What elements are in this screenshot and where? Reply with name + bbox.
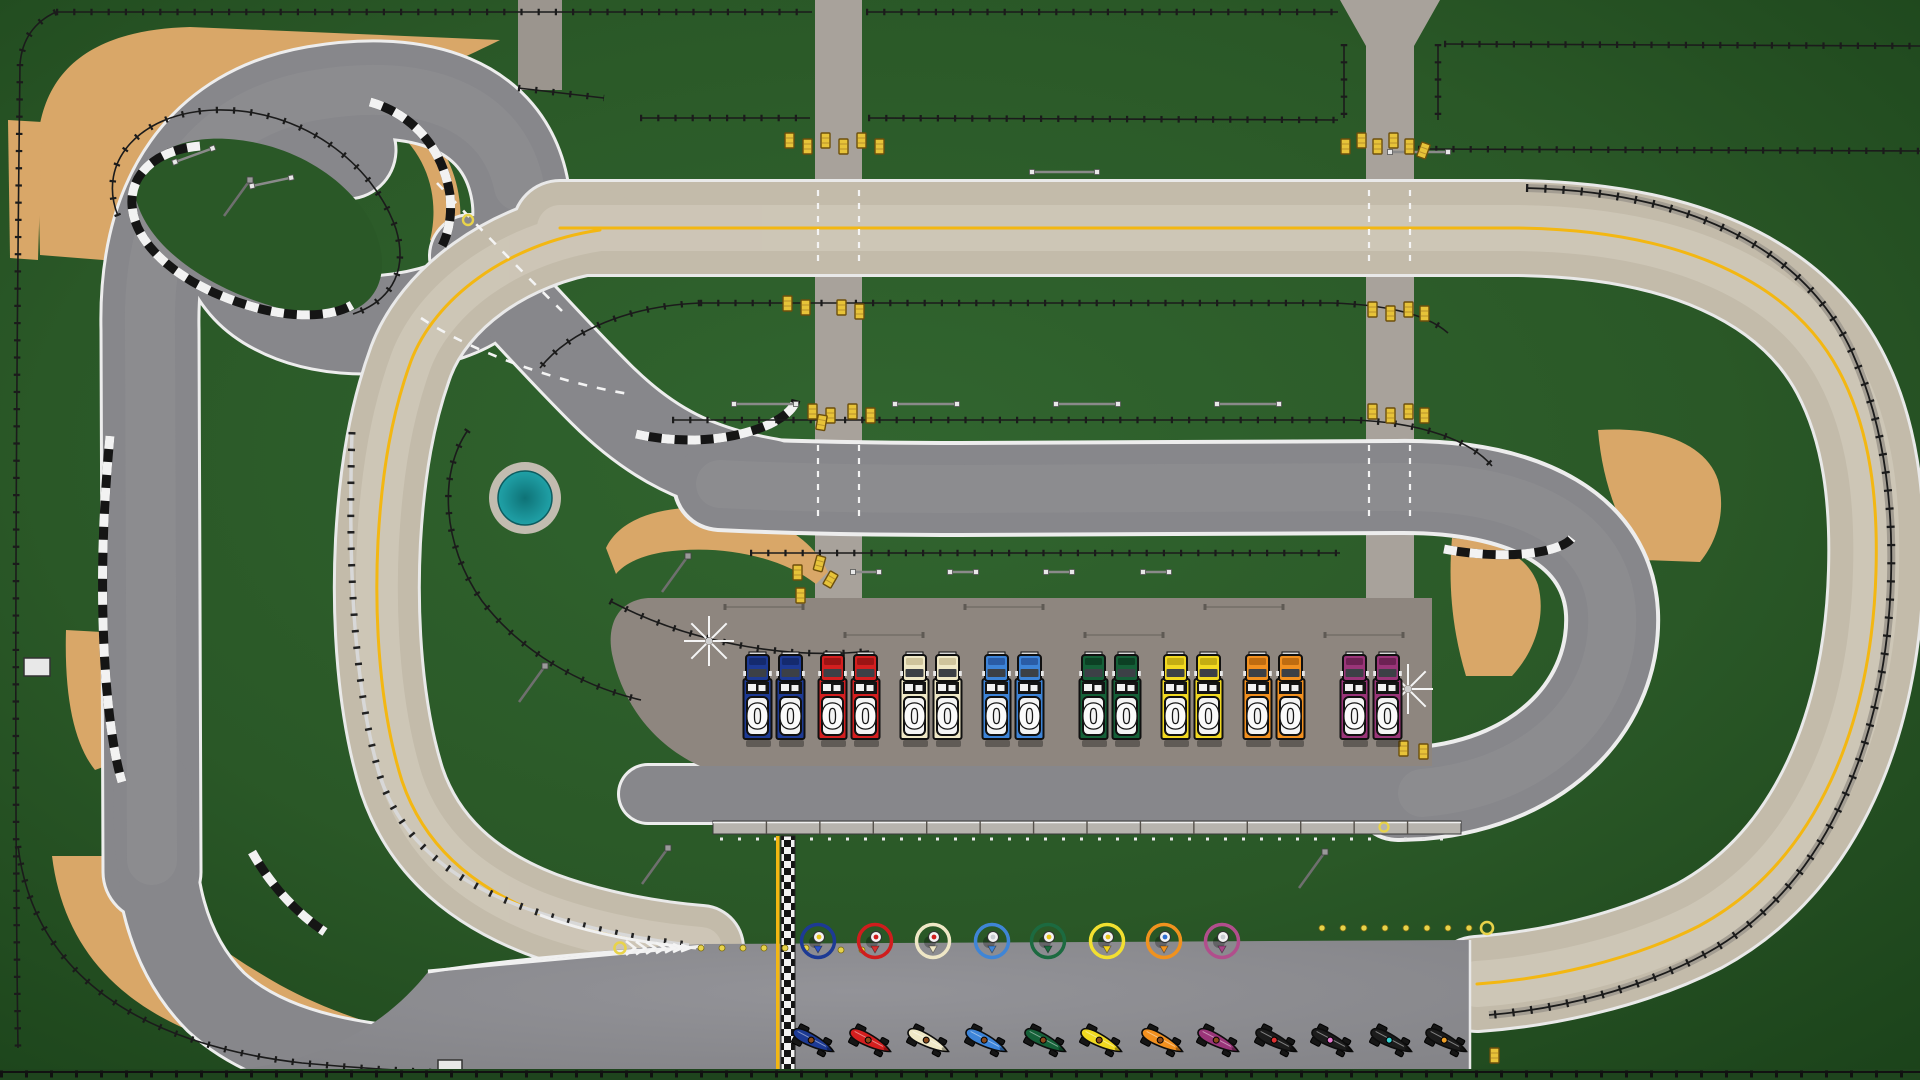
truck-digit: 0 xyxy=(1343,697,1366,736)
hay-bale xyxy=(1368,404,1377,419)
truck-yellow-2[interactable]: 0 xyxy=(1194,652,1223,747)
hay-bale xyxy=(1357,133,1366,148)
gravel-left-top-strip xyxy=(8,120,42,260)
truck-orange-1[interactable]: 0 xyxy=(1243,652,1272,747)
hay-bale xyxy=(793,565,802,580)
truck-digit: 0 xyxy=(854,697,877,736)
truck-red-1[interactable]: 0 xyxy=(818,652,847,747)
bottom-boundary xyxy=(0,1069,1920,1080)
hay-bale xyxy=(1490,1048,1499,1063)
hay-bale xyxy=(1404,404,1413,419)
hay-bale xyxy=(808,404,817,419)
truck-digit: 0 xyxy=(1164,697,1187,736)
truck-digit: 0 xyxy=(1246,697,1269,736)
hay-bale xyxy=(1341,139,1350,154)
truck-digit: 0 xyxy=(1018,697,1041,736)
hay-bale xyxy=(855,304,864,319)
hay-bale xyxy=(816,414,827,430)
hay-bale xyxy=(1404,302,1413,317)
hay-bale xyxy=(1389,133,1398,148)
truck-navy-2[interactable]: 0 xyxy=(776,652,805,747)
hay-bale xyxy=(866,408,875,423)
truck-green-2[interactable]: 0 xyxy=(1112,652,1141,747)
truck-orange-2[interactable]: 0 xyxy=(1276,652,1305,747)
hay-bale xyxy=(1420,408,1429,423)
pond xyxy=(489,462,561,534)
hay-bale xyxy=(785,133,794,148)
truck-digit: 0 xyxy=(1279,697,1302,736)
truck-digit: 0 xyxy=(821,697,844,736)
start-finish-line xyxy=(776,836,795,1073)
hay-bale xyxy=(875,139,884,154)
hay-bale xyxy=(1373,139,1382,154)
truck-red-2[interactable]: 0 xyxy=(851,652,880,747)
hay-bale xyxy=(1419,744,1428,759)
truck-digit: 0 xyxy=(1376,697,1399,736)
truck-digit: 0 xyxy=(936,697,959,736)
truck-digit: 0 xyxy=(779,697,802,736)
hay-bale xyxy=(801,300,810,315)
circuit-svg: 0000000000000000 xyxy=(0,0,1920,1080)
track-map: 0000000000000000 xyxy=(0,0,1920,1080)
truck-light-blue-1[interactable]: 0 xyxy=(982,652,1011,747)
truck-navy-1[interactable]: 0 xyxy=(743,652,772,747)
truck-purple-1[interactable]: 0 xyxy=(1340,652,1369,747)
truck-digit: 0 xyxy=(903,697,926,736)
truck-cream-1[interactable]: 0 xyxy=(900,652,929,747)
hay-bale xyxy=(848,404,857,419)
truck-light-blue-2[interactable]: 0 xyxy=(1015,652,1044,747)
marshal-hut-left xyxy=(24,658,50,676)
hay-bale xyxy=(857,133,866,148)
hay-bale xyxy=(1368,302,1377,317)
truck-purple-2[interactable]: 0 xyxy=(1373,652,1402,747)
hay-bale xyxy=(821,133,830,148)
hay-bale xyxy=(837,300,846,315)
truck-yellow-1[interactable]: 0 xyxy=(1161,652,1190,747)
hay-bale xyxy=(839,139,848,154)
truck-digit: 0 xyxy=(985,697,1008,736)
truck-green-1[interactable]: 0 xyxy=(1079,652,1108,747)
truck-digit: 0 xyxy=(746,697,769,736)
hay-bale xyxy=(1386,408,1395,423)
truck-cream-2[interactable]: 0 xyxy=(933,652,962,747)
hay-bale xyxy=(783,296,792,311)
hay-bale xyxy=(1420,306,1429,321)
hay-bale xyxy=(796,588,805,603)
truck-digit: 0 xyxy=(1197,697,1220,736)
hay-bale xyxy=(1386,306,1395,321)
hay-bale xyxy=(803,139,812,154)
truck-digit: 0 xyxy=(1115,697,1138,736)
truck-digit: 0 xyxy=(1082,697,1105,736)
hay-bale xyxy=(1405,139,1414,154)
